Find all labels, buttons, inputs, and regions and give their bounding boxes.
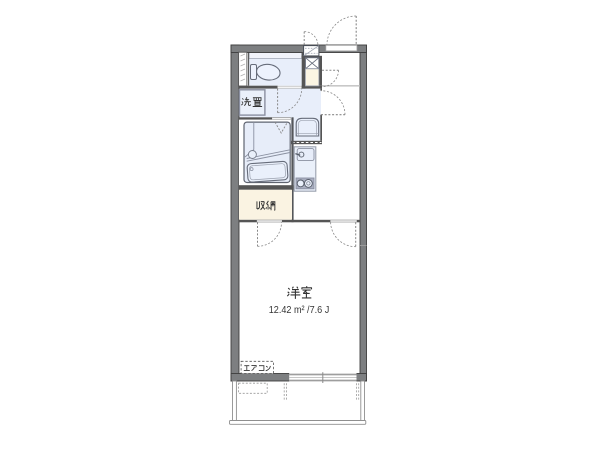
svg-text:12.42 m² /7.6 J: 12.42 m² /7.6 J [269,305,330,316]
